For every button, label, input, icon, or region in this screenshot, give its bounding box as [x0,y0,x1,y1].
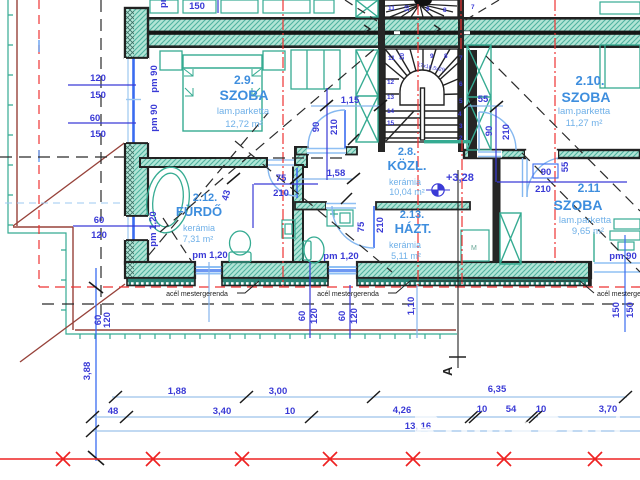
svg-text:2.9.: 2.9. [234,73,254,87]
svg-text:kerámia: kerámia [389,240,421,250]
svg-text:60: 60 [94,215,105,226]
svg-text:14: 14 [387,108,395,115]
svg-text:120: 120 [102,312,113,328]
svg-text:15: 15 [387,120,395,127]
svg-text:120: 120 [90,73,106,84]
svg-text:1,10: 1,10 [406,297,417,316]
svg-text:pm 90: pm 90 [609,251,636,262]
svg-text:55: 55 [560,161,571,172]
svg-text:KÖZL.: KÖZL. [388,158,427,173]
svg-text:SZOBA: SZOBA [554,197,603,213]
svg-text:11,27 m²: 11,27 m² [566,118,603,129]
svg-text:4: 4 [458,111,462,118]
svg-text:150: 150 [189,1,205,12]
svg-text:90: 90 [311,122,322,133]
svg-text:M: M [471,245,477,252]
svg-text:lam.parketta: lam.parketta [558,106,611,117]
svg-text:210: 210 [273,188,289,199]
svg-text:9: 9 [430,53,434,60]
svg-text:pm 90: pm 90 [149,65,160,92]
svg-text:SZOBA: SZOBA [562,89,611,105]
svg-text:lam.parketta: lam.parketta [559,215,612,226]
svg-text:kerámia: kerámia [389,177,421,187]
svg-text:150: 150 [90,90,106,101]
svg-text:3,00: 3,00 [269,386,288,397]
svg-text:pm 90: pm 90 [149,104,160,131]
svg-text:120: 120 [349,308,360,324]
svg-text:11: 11 [388,5,395,12]
svg-text:HÁZT.: HÁZT. [395,221,432,236]
svg-text:acél mestergerenda: acél mestergerenda [317,291,379,298]
svg-text:3,88: 3,88 [82,362,93,381]
svg-text:75: 75 [356,221,367,232]
svg-text:lam.parketta: lam.parketta [217,106,270,117]
svg-text:210: 210 [501,124,512,140]
svg-text:150: 150 [611,302,622,318]
svg-text:11: 11 [388,55,395,62]
svg-text:acél mestergerenda: acél mestergerenda [166,291,228,298]
svg-text:+3,28: +3,28 [446,172,474,184]
svg-text:12: 12 [387,79,395,86]
svg-text:10: 10 [404,4,411,12]
svg-text:2.10.: 2.10. [576,73,605,88]
svg-text:A: A [440,366,455,376]
svg-text:10,04 m²: 10,04 m² [389,187,425,197]
svg-text:pm 1,20: pm 1,20 [148,211,159,246]
svg-text:120: 120 [309,308,320,324]
svg-text:2.8.: 2.8. [398,146,416,158]
svg-text:2.13.: 2.13. [400,209,424,221]
svg-text:1,15: 1,15 [341,95,360,106]
svg-text:4,26: 4,26 [393,405,412,416]
svg-text:10: 10 [285,406,296,417]
svg-text:pm: pm [158,0,169,8]
svg-text:9: 9 [426,6,430,13]
svg-text:60: 60 [90,113,101,124]
svg-text:90: 90 [484,126,495,137]
svg-text:210: 210 [535,184,551,195]
svg-text:48: 48 [108,406,119,417]
svg-text:2.12.: 2.12. [193,192,217,204]
svg-text:8: 8 [443,7,447,14]
svg-text:150: 150 [625,302,636,318]
svg-text:acél mestergerenda: acél mestergerenda [597,291,640,298]
svg-text:90: 90 [541,167,552,178]
svg-text:60: 60 [337,311,348,322]
svg-text:7: 7 [459,55,463,62]
svg-text:1,88: 1,88 [168,386,187,397]
svg-text:5: 5 [459,98,463,105]
svg-text:8: 8 [444,53,448,60]
svg-text:pm 1,20: pm 1,20 [192,250,227,261]
svg-text:SZOBA: SZOBA [220,87,269,103]
svg-text:pm 1,20: pm 1,20 [323,251,358,262]
svg-text:1,58: 1,58 [327,168,346,179]
svg-text:9,65 m²: 9,65 m² [572,226,604,237]
svg-text:FÜRDŐ: FÜRDŐ [176,204,222,219]
svg-text:6: 6 [459,81,463,88]
svg-text:10: 10 [399,52,406,60]
svg-text:3,40: 3,40 [213,406,232,417]
svg-text:5,11 m²: 5,11 m² [391,251,421,261]
svg-text:RomePort: RomePort [412,407,627,451]
svg-text:kerámia: kerámia [183,223,215,233]
svg-text:210: 210 [329,119,340,135]
svg-text:12,72 m²: 12,72 m² [225,119,263,130]
svg-text:2.11: 2.11 [578,181,601,195]
svg-text:150: 150 [90,129,106,140]
svg-text:3: 3 [459,123,463,130]
svg-text:7,31 m²: 7,31 m² [183,234,214,244]
svg-text:6,35: 6,35 [488,384,507,395]
svg-text:75: 75 [276,173,287,184]
svg-text:55: 55 [478,94,489,105]
svg-text:210: 210 [375,217,386,233]
svg-text:7: 7 [471,4,475,11]
svg-text:13: 13 [387,94,395,101]
svg-text:120: 120 [91,230,107,241]
svg-text:60: 60 [297,311,308,322]
